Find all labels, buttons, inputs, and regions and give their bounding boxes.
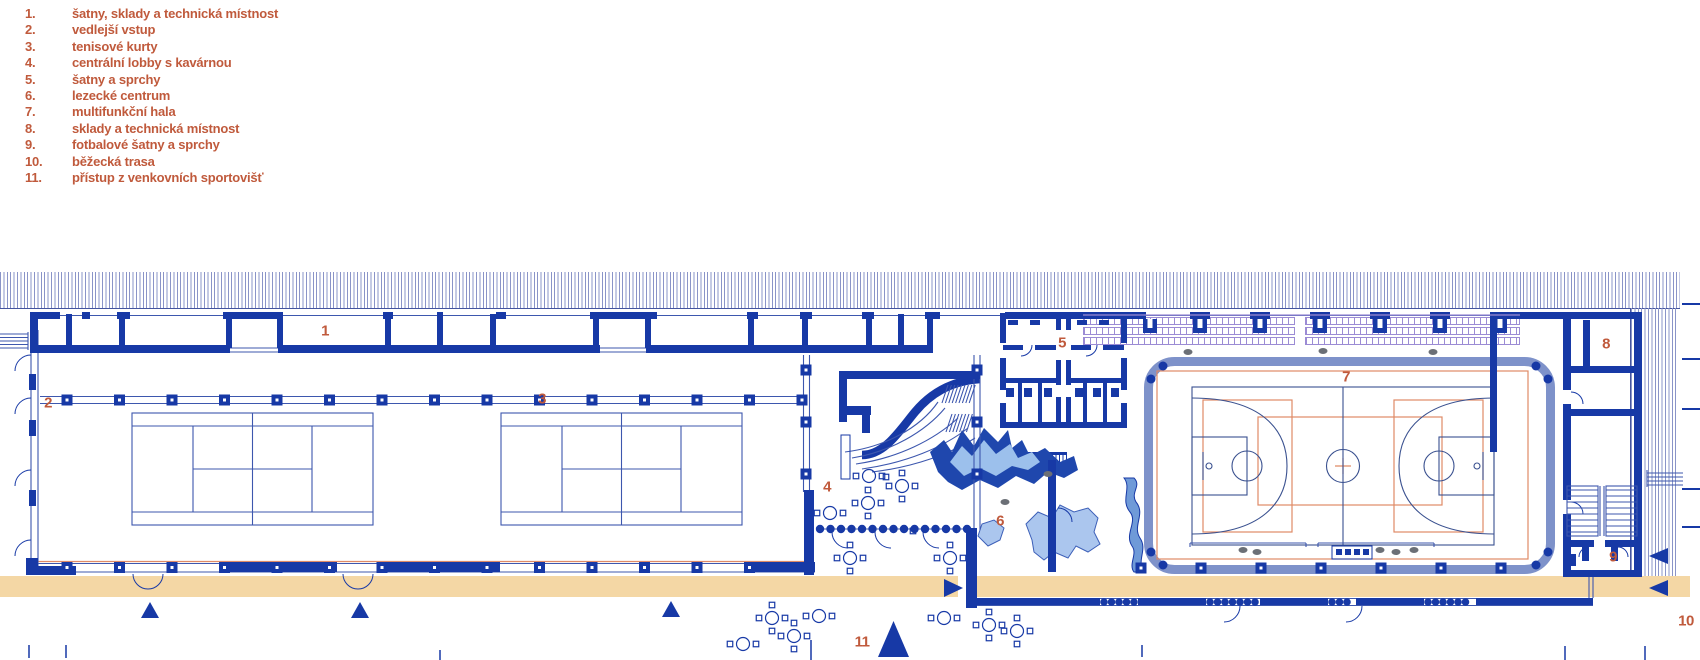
plan-linework [0, 0, 1700, 660]
climbing-boulders [930, 428, 1144, 572]
plan-label-9: 9 [1609, 549, 1617, 566]
entrance-triangle-3 [662, 601, 680, 617]
plan-label-11: 11 [855, 634, 870, 651]
plan-label-4: 4 [823, 479, 831, 496]
track-arrow-left-bottom [1649, 580, 1668, 596]
floor-plan-page: 1.šatny, sklady a technická místnost2.ve… [0, 0, 1700, 660]
plan-label-5: 5 [1058, 335, 1066, 352]
entrance-triangle-2 [351, 602, 369, 618]
main-entrance-triangle [878, 621, 909, 657]
plan-label-1: 1 [321, 323, 329, 340]
plan-label-10: 10 [1678, 613, 1694, 630]
basketball-court [1192, 387, 1494, 545]
plan-label-3: 3 [538, 391, 546, 408]
plan-label-8: 8 [1602, 336, 1610, 353]
plan-label-7: 7 [1342, 369, 1350, 386]
hall-court-orange-lines [33, 371, 1528, 562]
track-arrow-left-top [1649, 548, 1668, 564]
plan-label-2: 2 [44, 395, 52, 412]
track-arrow-right [944, 579, 963, 597]
entrance-triangle-1 [141, 602, 159, 618]
plan-label-6: 6 [996, 513, 1004, 530]
